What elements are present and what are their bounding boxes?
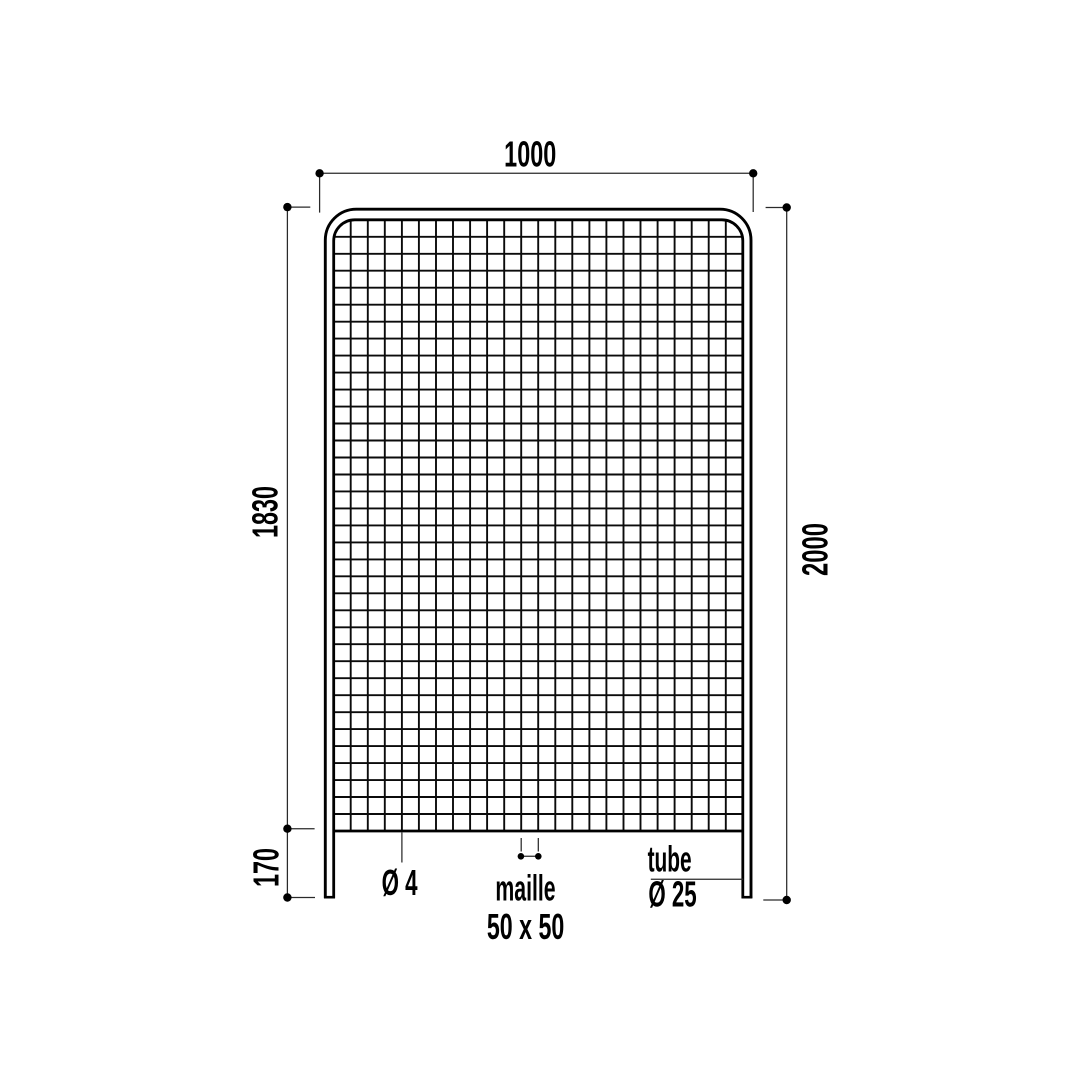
svg-text:1830: 1830 bbox=[247, 486, 286, 538]
svg-text:1000: 1000 bbox=[504, 136, 556, 175]
svg-text:170: 170 bbox=[247, 848, 286, 887]
svg-text:Ø 4: Ø 4 bbox=[382, 864, 418, 904]
svg-text:50 x 50: 50 x 50 bbox=[487, 908, 564, 947]
svg-text:2000: 2000 bbox=[796, 523, 836, 576]
svg-text:maille: maille bbox=[495, 869, 555, 909]
svg-text:tube: tube bbox=[648, 840, 692, 880]
svg-text:Ø 25: Ø 25 bbox=[648, 875, 696, 915]
